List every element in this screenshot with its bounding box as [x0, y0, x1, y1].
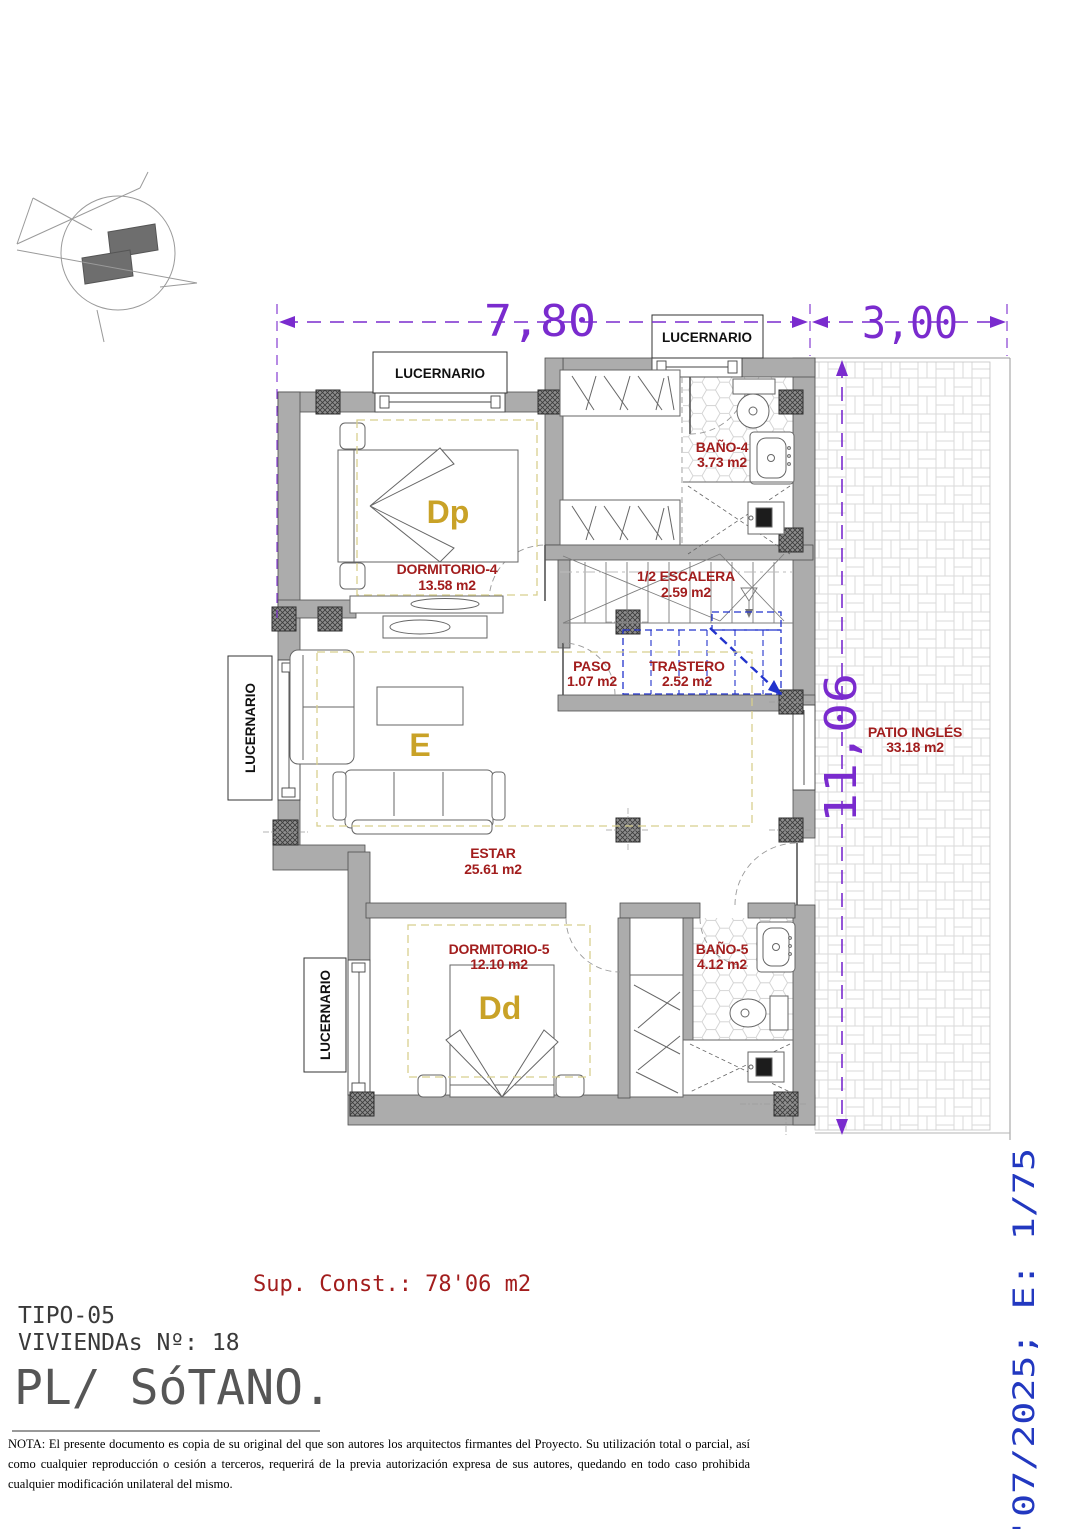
- label-trastero: TRASTERO: [649, 658, 725, 674]
- dimension-width-text: 7,80: [484, 296, 596, 347]
- type-text: TIPO-05: [18, 1303, 115, 1329]
- letter-estar: E: [409, 727, 430, 763]
- floor-title-text: PL/ SóTANO.: [14, 1360, 332, 1416]
- floor-plan-drawing: LUCERNARIO LUCERNARIO LUCERNARIO LUCERNA…: [0, 0, 1080, 1529]
- wardrobe-dorm5: [630, 975, 683, 1097]
- shower-bano4: [683, 482, 793, 554]
- shower-bano5: [685, 1040, 793, 1092]
- sink-bano4: [750, 432, 794, 484]
- label-bano5: BAÑO-5: [696, 940, 749, 957]
- area-bano5: 4.12 m2: [697, 956, 747, 972]
- label-dormitorio4: DORMITORIO-4: [397, 561, 498, 577]
- area-bano4: 3.73 m2: [697, 454, 747, 470]
- area-estar: 25.61 m2: [464, 861, 522, 877]
- title-underline: [12, 1430, 320, 1432]
- sink-bano5: [757, 922, 795, 972]
- area-dormitorio4: 13.58 m2: [418, 577, 476, 593]
- sofa-set: [290, 650, 505, 834]
- label-patio-ingles: PATIO INGLÉS: [868, 724, 962, 740]
- letter-dormitorio5: Dd: [479, 990, 522, 1026]
- sideboard: [350, 596, 503, 638]
- dimension-patio-text: 3,00: [862, 298, 958, 349]
- area-escalera: 2.59 m2: [661, 584, 711, 600]
- wardrobe-middle: [560, 500, 680, 545]
- date-scale-stamp: '07/2025; E: 1/75: [1007, 1148, 1041, 1529]
- copyright-note: NOTA: El presente documento es copia de …: [8, 1434, 750, 1494]
- wardrobe-top: [560, 370, 680, 416]
- letter-dormitorio4: Dp: [427, 494, 470, 530]
- north-arrow-icon: [17, 172, 197, 342]
- dimension-height-text: 11,06: [816, 673, 867, 823]
- area-patio-ingles: 33.18 m2: [886, 739, 944, 755]
- label-dormitorio5: DORMITORIO-5: [449, 941, 550, 957]
- label-paso: PASO: [573, 658, 611, 674]
- area-trastero: 2.52 m2: [662, 673, 712, 689]
- area-paso: 1.07 m2: [567, 673, 617, 689]
- skylight-label-top-right: LUCERNARIO: [662, 330, 752, 345]
- skylight-label-top-left: LUCERNARIO: [395, 366, 485, 381]
- skylight-label-bottom-left: LUCERNARIO: [318, 970, 333, 1060]
- label-escalera: 1/2 ESCALERA: [637, 568, 735, 584]
- area-dormitorio5: 12.10 m2: [470, 956, 528, 972]
- skylight-label-left: LUCERNARIO: [243, 683, 258, 773]
- dwelling-number-text: VIVIENDAs Nº: 18: [18, 1330, 240, 1356]
- built-area-text: Sup. Const.: 78'06 m2: [253, 1272, 531, 1297]
- label-bano4: BAÑO-4: [696, 438, 749, 455]
- coffee-table: [377, 687, 463, 725]
- label-estar: ESTAR: [470, 845, 515, 861]
